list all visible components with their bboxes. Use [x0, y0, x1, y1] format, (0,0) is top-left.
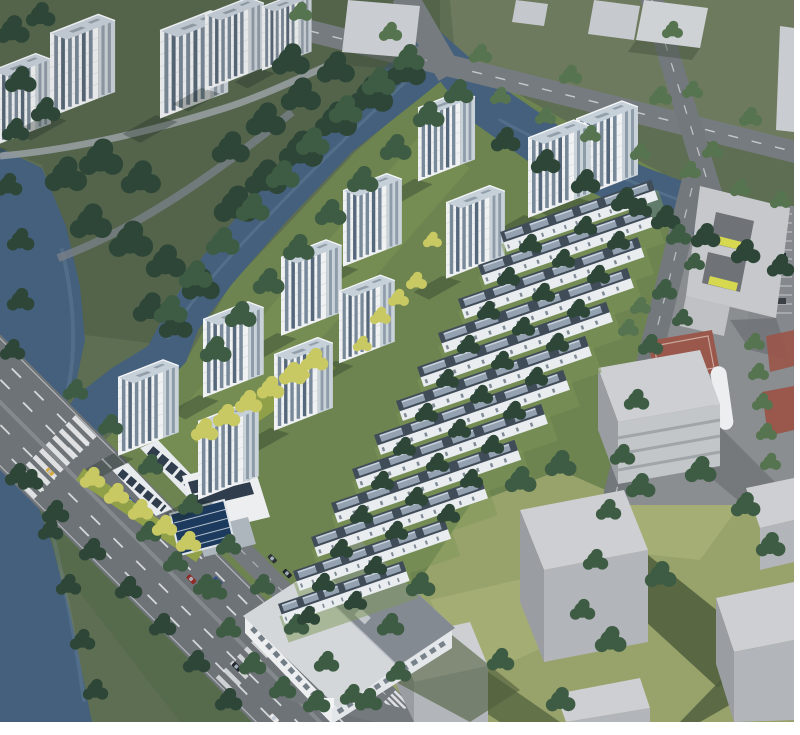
aerial-rendering: [0, 0, 794, 722]
massing-block: [512, 0, 548, 26]
massing-block: [588, 0, 640, 40]
tennis-court: [766, 330, 794, 372]
rendering-frame: [0, 0, 800, 735]
massing-block-facade: [734, 640, 794, 722]
